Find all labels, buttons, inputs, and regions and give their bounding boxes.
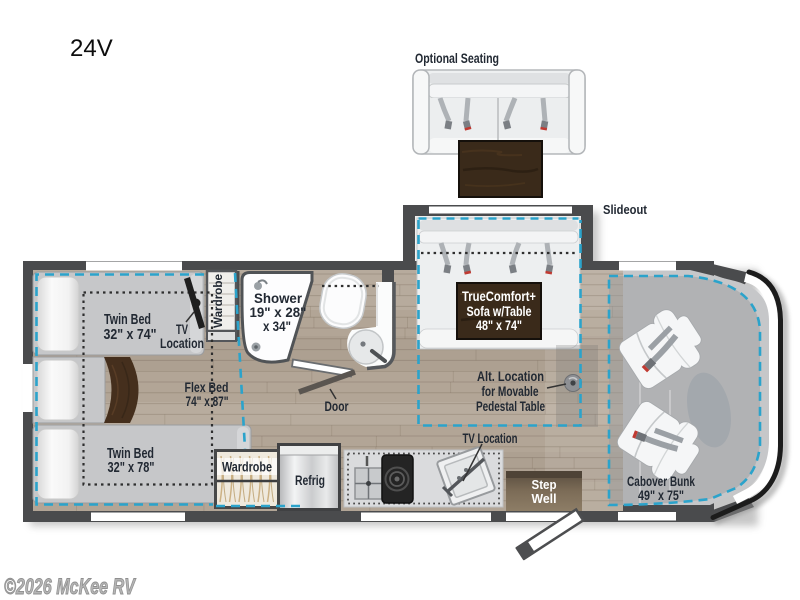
svg-text:x 34": x 34" [263, 318, 291, 334]
svg-text:TV Location: TV Location [463, 430, 518, 446]
svg-text:Well: Well [532, 492, 557, 506]
svg-text:48" x 74": 48" x 74" [476, 318, 522, 333]
svg-text:24V: 24V [70, 35, 113, 62]
svg-text:Refrig: Refrig [295, 473, 325, 488]
svg-text:Door: Door [325, 398, 349, 414]
svg-text:Step: Step [532, 478, 557, 492]
svg-text:Sofa w/Table: Sofa w/Table [467, 304, 532, 319]
svg-text:for Movable: for Movable [482, 384, 539, 399]
svg-text:Alt. Location: Alt. Location [477, 369, 544, 384]
svg-text:49" x 75": 49" x 75" [638, 487, 684, 503]
svg-text:©2026 McKee RV: ©2026 McKee RV [4, 574, 137, 599]
svg-text:Optional Seating: Optional Seating [415, 50, 499, 66]
svg-text:Pedestal Table: Pedestal Table [476, 399, 545, 414]
svg-text:Location: Location [160, 335, 204, 351]
svg-text:Slideout: Slideout [603, 202, 648, 217]
svg-text:74" x 87": 74" x 87" [186, 393, 229, 409]
svg-text:TrueComfort+: TrueComfort+ [462, 289, 536, 304]
svg-text:32" x 78": 32" x 78" [108, 459, 155, 476]
svg-text:32" x 74": 32" x 74" [104, 326, 157, 343]
svg-text:Wardrobe: Wardrobe [222, 460, 272, 475]
